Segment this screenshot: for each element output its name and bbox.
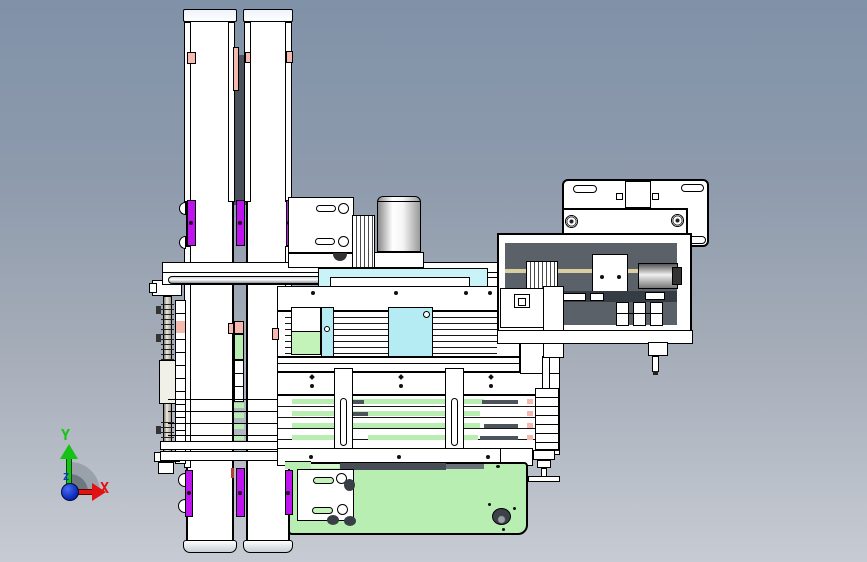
gap-green-block — [234, 334, 244, 360]
strap-slot — [451, 398, 458, 446]
screw-dot — [488, 291, 492, 295]
screw-dot — [189, 221, 193, 225]
pink-bumper — [245, 52, 251, 63]
column-bottom-cap[interactable] — [243, 540, 293, 553]
rail-dark-seg — [484, 424, 518, 428]
z-axis-label: Z — [63, 473, 69, 483]
cross-band — [160, 451, 278, 461]
band-block — [645, 292, 665, 300]
screw-dot — [310, 384, 314, 388]
stage-band-lower[interactable] — [277, 372, 560, 395]
motor-base-box[interactable] — [374, 252, 424, 268]
screw-dot — [286, 491, 290, 495]
gap-green-strip — [234, 403, 244, 408]
bar-screw — [671, 214, 684, 227]
dark-blob — [344, 479, 355, 491]
slot-hole — [573, 185, 597, 193]
foot-cone — [537, 460, 551, 468]
cylinder-end-cap — [672, 267, 682, 285]
screw-dot — [486, 455, 490, 459]
column-bottom-cap[interactable] — [183, 540, 237, 553]
grid-pillar — [633, 302, 646, 326]
screw-dot — [502, 528, 505, 531]
slot-hole — [681, 184, 704, 192]
base-gray-bar — [446, 464, 484, 469]
left-unit-white[interactable] — [291, 307, 321, 333]
pillar-line — [616, 313, 663, 314]
rail-line — [168, 423, 277, 424]
rail-pink-cap — [527, 399, 533, 404]
screw-dot — [600, 275, 604, 279]
guide-rail-strip[interactable] — [184, 22, 191, 202]
grid-pillar — [650, 302, 663, 326]
screw-dot — [187, 491, 191, 495]
cross-band — [160, 441, 278, 450]
gripper-box[interactable] — [592, 254, 628, 292]
motor-cylinder[interactable] — [377, 196, 421, 252]
dark-blob — [344, 516, 356, 526]
screw-square — [616, 193, 623, 200]
red-tick — [231, 468, 234, 478]
ladder-pink-seg — [176, 321, 185, 333]
rail-line — [168, 411, 277, 412]
slot-hole-green — [312, 507, 333, 514]
motor-stand-slats[interactable] — [352, 215, 375, 268]
screw-dot — [496, 465, 500, 468]
rail-dark-seg — [482, 400, 518, 404]
screw-hole — [337, 504, 348, 515]
slot-hole — [316, 205, 336, 212]
gap-ladder — [234, 360, 244, 402]
motor-cap-line — [378, 201, 420, 202]
rod-tab — [156, 334, 161, 342]
slot-hole-green — [313, 477, 334, 484]
rail-line — [168, 435, 277, 436]
pin-tip-dark — [653, 371, 658, 375]
pink-bumper — [286, 51, 293, 63]
band-block — [590, 293, 604, 301]
screw-dot — [309, 455, 313, 459]
screw-hole — [338, 203, 349, 214]
screw-dot — [617, 275, 621, 279]
rod-ribs — [161, 300, 174, 362]
screw-dot — [311, 291, 315, 295]
pink-nub — [272, 328, 279, 340]
stage-band-mid[interactable] — [277, 357, 520, 372]
x-axis-label: X — [100, 481, 109, 496]
pink-bumper — [233, 47, 239, 91]
left-unit-green[interactable] — [291, 331, 321, 355]
base-large-hole — [492, 508, 511, 525]
strap-slot — [340, 398, 347, 446]
column-top-cap[interactable] — [183, 9, 237, 22]
green-edge-strip — [285, 461, 311, 469]
pink-bumper — [187, 52, 196, 64]
screw-dot — [399, 384, 403, 388]
rail-end-stack[interactable] — [535, 388, 559, 450]
screw-hole — [423, 311, 430, 318]
base-dark-bar — [340, 463, 446, 470]
side-knob — [178, 499, 186, 513]
side-knob — [179, 236, 186, 249]
frame-foot — [648, 342, 668, 356]
screw-dot — [489, 384, 493, 388]
side-knob — [179, 202, 186, 215]
cad-viewport[interactable]: Z Y X — [0, 0, 867, 562]
y-axis-arrowhead — [60, 444, 78, 459]
rail-line — [277, 363, 520, 364]
screw-hole — [324, 326, 330, 332]
rod-tab — [156, 306, 161, 314]
origin-sphere — [61, 483, 79, 501]
rod-tab — [156, 426, 161, 434]
rail-green-seg — [366, 399, 484, 404]
rail-pink-cap — [527, 435, 533, 440]
slot-hole — [315, 238, 335, 245]
rail-line — [168, 399, 277, 400]
sensor-box[interactable] — [625, 181, 651, 208]
gap-pink-block — [234, 321, 244, 334]
rail-dark-seg — [352, 412, 368, 416]
screw-dot — [397, 455, 401, 459]
gap-green-strip — [234, 424, 244, 429]
column-top-cap[interactable] — [243, 9, 293, 22]
screw-dot — [464, 291, 468, 295]
bar-screw — [565, 215, 578, 228]
left-unit-cyan-strip[interactable] — [321, 307, 334, 357]
rail-pink-cap — [527, 411, 533, 416]
y-axis-label: Y — [61, 428, 70, 443]
rod-collar[interactable] — [159, 360, 176, 404]
guide-rail-strip[interactable] — [244, 22, 251, 202]
inner-square — [518, 298, 526, 306]
rod-top-mount-cap — [149, 283, 157, 293]
screw-dot — [238, 491, 242, 495]
dark-blob — [327, 515, 339, 525]
frame-pin — [652, 356, 659, 372]
screw-square — [652, 193, 659, 200]
rail-dark-seg — [480, 436, 518, 440]
grid-pillar — [616, 302, 629, 326]
rail-pink-cap — [527, 423, 533, 428]
screw-dot — [394, 291, 398, 295]
gap-green-strip — [234, 413, 244, 418]
side-knob — [178, 473, 186, 487]
tall-pillar[interactable] — [543, 286, 564, 358]
screw-dot — [488, 503, 491, 506]
screw-dot — [513, 507, 516, 510]
screw-hole — [338, 236, 349, 247]
foot-cone — [533, 450, 555, 460]
guide-rail-strip[interactable] — [285, 22, 292, 202]
screw-dot — [238, 221, 242, 225]
rod-bottom-foot — [158, 462, 174, 474]
foot-base — [528, 476, 560, 482]
